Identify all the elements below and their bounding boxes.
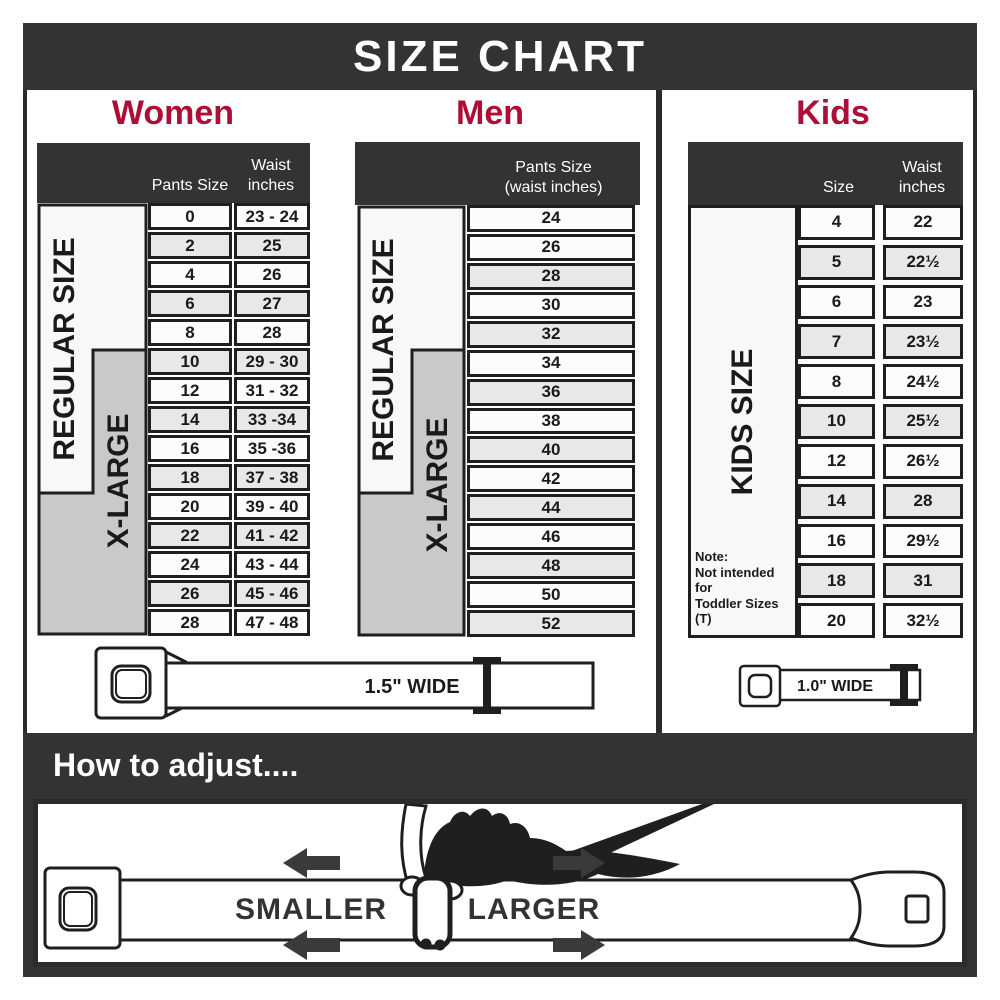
kids-belt-width-label: 1.0" WIDE — [797, 678, 873, 695]
index-finger — [402, 804, 426, 884]
table-cell: 25½ — [883, 404, 963, 439]
table-cell: 44 — [467, 494, 635, 521]
table-cell: 36 — [467, 379, 635, 406]
table-cell: 29½ — [883, 524, 963, 559]
women-xlarge-label: X-LARGE — [102, 414, 135, 549]
belt-tongue-hole — [906, 896, 928, 922]
men-table-body: 242628303234363840424446485052 — [467, 205, 635, 637]
how-to-adjust-section: How to adjust.... — [23, 733, 977, 977]
table-cell: 16 — [148, 435, 232, 462]
table-cell: 52 — [467, 610, 635, 637]
table-cell: 18 — [148, 464, 232, 491]
table-cell: 42 — [467, 465, 635, 492]
table-cell: 33 -34 — [234, 406, 310, 433]
hand-icon — [424, 809, 680, 887]
table-cell: 23½ — [883, 324, 963, 359]
table-cell: 50 — [467, 581, 635, 608]
table-cell: 20 — [148, 493, 232, 520]
table-cell: 14 — [798, 484, 875, 519]
title-bar: SIZE CHART — [23, 23, 977, 90]
table-cell: 28 — [234, 319, 310, 346]
table-cell: 24 — [148, 551, 232, 578]
table-cell: 22 — [883, 205, 963, 240]
men-size-range-labels: REGULAR SIZE X-LARGE — [357, 205, 467, 637]
table-cell: 26½ — [883, 444, 963, 479]
smaller-label: SMALLER — [235, 893, 387, 926]
table-cell: 35 -36 — [234, 435, 310, 462]
table-cell: 28 — [883, 484, 963, 519]
table-cell: 22 — [148, 522, 232, 549]
table-cell: 22½ — [883, 245, 963, 280]
table-cell: 4 — [148, 261, 232, 288]
kids-table-header: Size Waist inches — [688, 142, 963, 205]
kids-col-waist: Waist inches — [882, 158, 962, 198]
table-cell: 48 — [467, 552, 635, 579]
table-cell: 46 — [467, 523, 635, 550]
adjust-diagram: SMALLER LARGER — [38, 804, 962, 962]
table-cell: 23 — [883, 285, 963, 320]
adult-belt-illustration: 1.5" WIDE — [90, 642, 600, 726]
kids-note: Note: Not intended for Toddler Sizes (T) — [695, 549, 795, 627]
table-cell: 6 — [148, 290, 232, 317]
table-cell: 28 — [467, 263, 635, 290]
table-cell: 32 — [467, 321, 635, 348]
buckle-button-outer — [749, 675, 771, 697]
table-cell: 7 — [798, 324, 875, 359]
kids-belt-illustration: 1.0" WIDE — [735, 655, 935, 715]
table-cell: 26 — [467, 234, 635, 261]
table-cell: 30 — [467, 292, 635, 319]
how-to-adjust-diagram-box: SMALLER LARGER — [33, 799, 967, 967]
table-cell: 12 — [148, 377, 232, 404]
table-cell: 31 - 32 — [234, 377, 310, 404]
table-cell: 43 - 44 — [234, 551, 310, 578]
women-section-title: Women — [63, 94, 283, 133]
kids-section-title: Kids — [723, 94, 943, 133]
table-cell: 29 - 30 — [234, 348, 310, 375]
table-cell: 37 - 38 — [234, 464, 310, 491]
adjuster-loop — [435, 940, 446, 951]
table-cell: 40 — [467, 436, 635, 463]
women-col-pants-size: Pants Size — [148, 176, 232, 196]
table-cell: 16 — [798, 524, 875, 559]
table-cell: 12 — [798, 444, 875, 479]
table-cell: 41 - 42 — [234, 522, 310, 549]
men-xlarge-label: X-LARGE — [421, 418, 454, 553]
table-cell: 32½ — [883, 603, 963, 638]
table-cell: 18 — [798, 563, 875, 598]
men-table-header: Pants Size (waist inches) — [355, 142, 640, 205]
table-cell: 0 — [148, 203, 232, 230]
table-cell: 10 — [148, 348, 232, 375]
kids-table-body: 422522½623723½824½1025½1226½14281629½183… — [798, 205, 963, 638]
table-cell: 10 — [798, 404, 875, 439]
table-cell: 20 — [798, 603, 875, 638]
size-chart-page: SIZE CHART Women Men Kids Pants Size Wai… — [0, 0, 1000, 1000]
buckle-button-inner — [64, 892, 92, 926]
page-title: SIZE CHART — [353, 32, 647, 82]
table-cell: 14 — [148, 406, 232, 433]
women-size-range-labels: REGULAR SIZE X-LARGE — [37, 203, 148, 636]
table-cell: 47 - 48 — [234, 609, 310, 636]
men-section-title: Men — [380, 94, 600, 133]
men-regular-size-label: REGULAR SIZE — [367, 238, 400, 461]
arrow-left-icon — [283, 848, 340, 878]
larger-label: LARGER — [468, 893, 601, 926]
kids-col-size: Size — [800, 178, 877, 198]
kids-size-label-box: KIDS SIZE Note: Not intended for Toddler… — [688, 205, 798, 638]
women-regular-size-label: REGULAR SIZE — [48, 237, 81, 460]
kids-size-label: KIDS SIZE — [726, 348, 760, 495]
table-cell: 2 — [148, 232, 232, 259]
table-cell: 4 — [798, 205, 875, 240]
table-cell: 26 — [234, 261, 310, 288]
table-cell: 34 — [467, 350, 635, 377]
table-cell: 28 — [148, 609, 232, 636]
men-col-pants-size: Pants Size (waist inches) — [467, 158, 640, 198]
how-to-adjust-heading: How to adjust.... — [53, 747, 298, 784]
belt-adjuster-slider — [415, 878, 450, 947]
buckle-button-inner — [116, 670, 146, 698]
table-cell: 39 - 40 — [234, 493, 310, 520]
women-table-body: 023 - 242254266278281029 - 301231 - 3214… — [148, 203, 310, 636]
table-cell: 8 — [798, 364, 875, 399]
table-cell: 45 - 46 — [234, 580, 310, 607]
table-cell: 26 — [148, 580, 232, 607]
table-cell: 6 — [798, 285, 875, 320]
table-cell: 27 — [234, 290, 310, 317]
table-cell: 38 — [467, 408, 635, 435]
table-cell: 5 — [798, 245, 875, 280]
table-cell: 23 - 24 — [234, 203, 310, 230]
women-col-waist: Waist inches — [232, 156, 310, 196]
table-cell: 8 — [148, 319, 232, 346]
adjuster-loop — [421, 939, 432, 950]
panel-divider — [656, 90, 662, 733]
women-table-header: Pants Size Waist inches — [37, 143, 310, 203]
table-cell: 24½ — [883, 364, 963, 399]
adult-belt-width-label: 1.5" WIDE — [364, 676, 459, 698]
table-cell: 25 — [234, 232, 310, 259]
table-cell: 31 — [883, 563, 963, 598]
belt-tongue-icon — [851, 872, 944, 946]
table-cell: 24 — [467, 205, 635, 232]
